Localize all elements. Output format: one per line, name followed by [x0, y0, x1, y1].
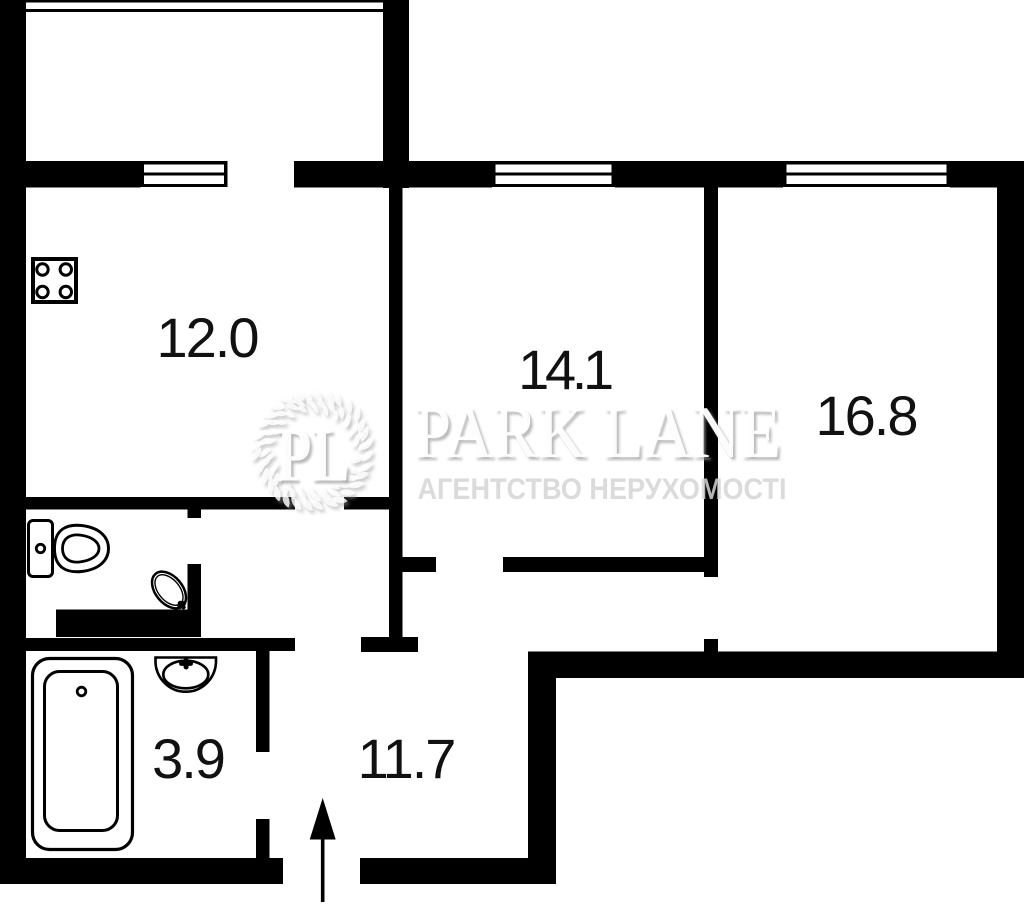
svg-text:PL: PL — [277, 412, 350, 498]
svg-text:АГЕНТСТВО НЕРУХОМОСТІ: АГЕНТСТВО НЕРУХОМОСТІ — [418, 473, 787, 506]
svg-text:3.9: 3.9 — [152, 727, 224, 790]
svg-text:16.8: 16.8 — [816, 384, 917, 447]
svg-text:11.7: 11.7 — [358, 727, 455, 790]
svg-text:12.0: 12.0 — [157, 306, 258, 369]
svg-text:14.1: 14.1 — [518, 338, 612, 401]
svg-text:PARK LANE: PARK LANE — [414, 392, 781, 474]
